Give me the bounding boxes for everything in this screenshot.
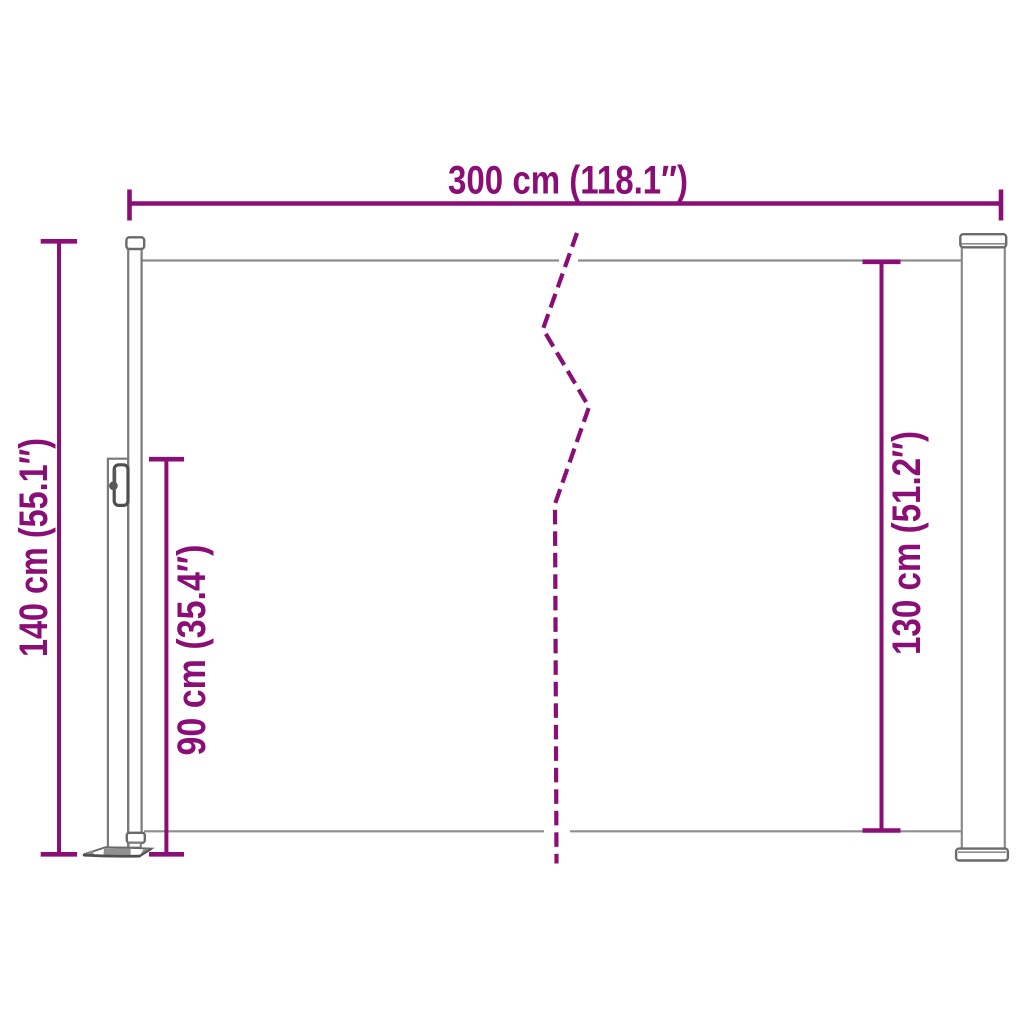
svg-text:140 cm (55.1″): 140 cm (55.1″) <box>12 438 56 657</box>
svg-text:300 cm (118.1″): 300 cm (118.1″) <box>448 159 688 203</box>
svg-text:130 cm (51.2″): 130 cm (51.2″) <box>885 431 929 655</box>
svg-text:90 cm (35.4″): 90 cm (35.4″) <box>170 545 214 756</box>
